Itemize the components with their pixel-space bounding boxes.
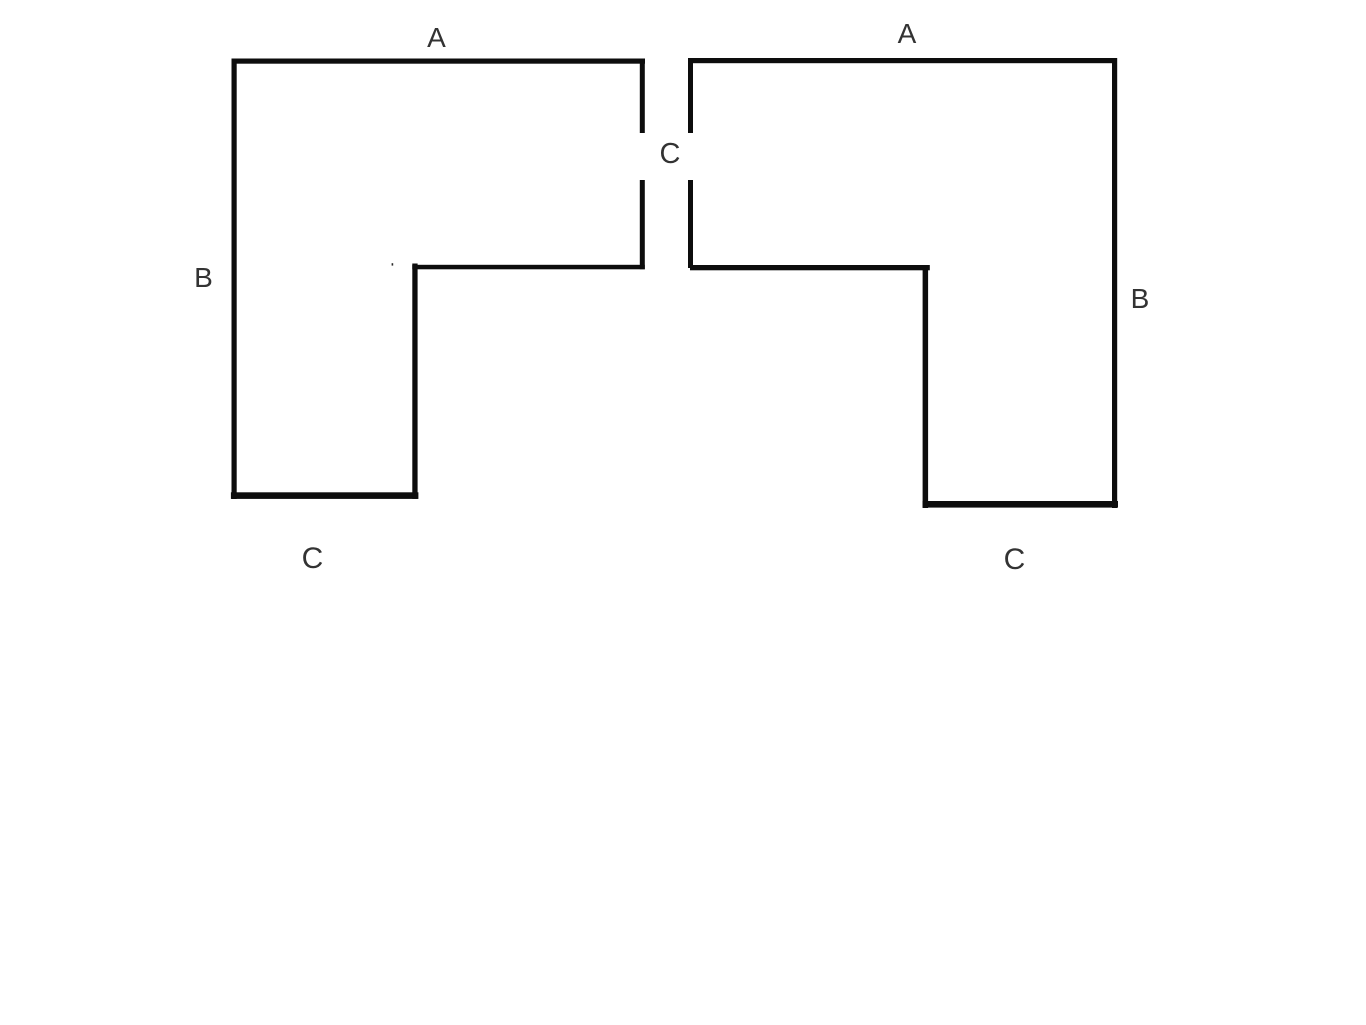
svg-text:B: B [1131,283,1150,314]
svg-text:A: A [427,22,446,53]
svg-text:A: A [898,18,917,49]
svg-text:C: C [302,542,324,575]
svg-text:C: C [660,138,681,170]
svg-text:B: B [194,262,213,293]
svg-text:C: C [1004,543,1026,576]
